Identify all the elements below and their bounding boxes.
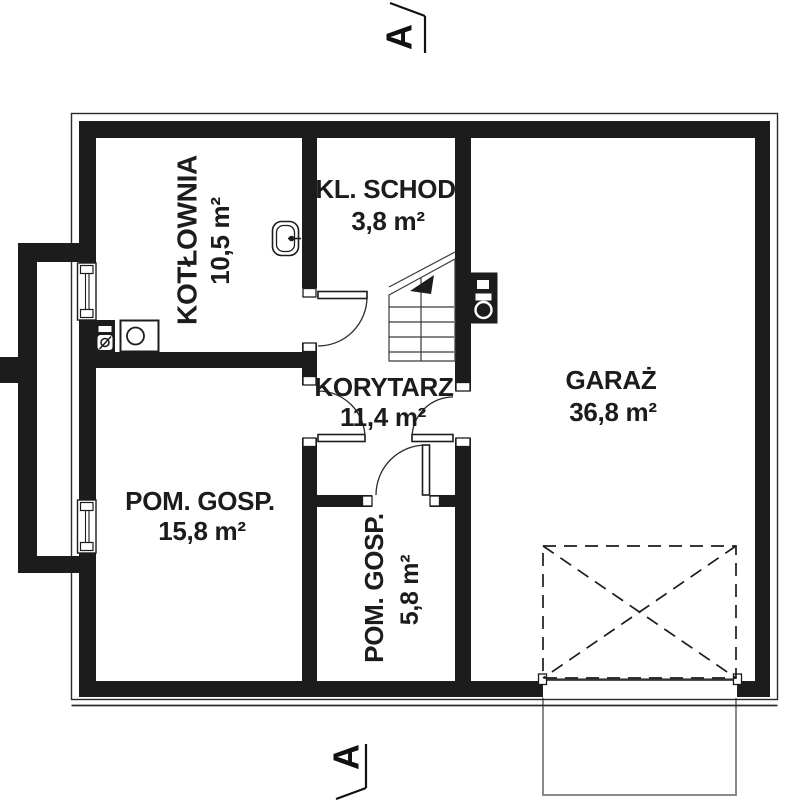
sink-icon [273, 222, 302, 256]
meter-panel-icon [94, 320, 115, 355]
section-marker-bottom: A [326, 744, 367, 799]
room-label-pom-gosp-15: POM. GOSP. 15,8 m² [125, 486, 275, 546]
room-label-kl-schod: KL. SCHOD. 3,8 m² [315, 174, 462, 236]
door-pom-gosp-5 [376, 445, 430, 495]
room-name: GARAŻ [566, 365, 657, 395]
exterior-stairwell [18, 243, 79, 573]
garage-door-swing-dashed [543, 546, 736, 678]
room-name: KOTŁOWNIA [172, 155, 203, 325]
room-name: KORYTARZ [314, 372, 454, 402]
window-icon [78, 500, 97, 553]
stairs-direction-arrow [410, 275, 434, 294]
water-heater-icon [471, 273, 498, 324]
room-area: 15,8 m² [158, 516, 246, 546]
room-area: 36,8 m² [569, 397, 657, 427]
room-area: 10,5 m² [205, 197, 235, 285]
stairs-icon [389, 252, 455, 361]
room-area: 11,4 m² [340, 402, 427, 432]
boiler-icon [121, 321, 159, 352]
room-label-kotlownia: KOTŁOWNIA 10,5 m² [172, 155, 236, 325]
room-name: KL. SCHOD. [315, 174, 462, 204]
section-marker-top: A [379, 3, 426, 53]
window-icon [78, 263, 97, 320]
section-letter: A [379, 24, 420, 50]
floor-plan: KOTŁOWNIA 10,5 m² KL. SCHOD. 3,8 m² KORY… [0, 0, 800, 800]
room-name: POM. GOSP. [359, 513, 389, 663]
door-kotlownia [318, 292, 367, 347]
room-area: 3,8 m² [351, 206, 425, 236]
room-label-pom-gosp-5: POM. GOSP. 5,8 m² [359, 513, 424, 663]
section-letter: A [326, 744, 367, 770]
room-name: POM. GOSP. [125, 486, 275, 516]
room-area: 5,8 m² [396, 555, 424, 625]
retaining-wall-stub [0, 357, 20, 383]
room-label-garaz: GARAŻ 36,8 m² [566, 365, 658, 427]
